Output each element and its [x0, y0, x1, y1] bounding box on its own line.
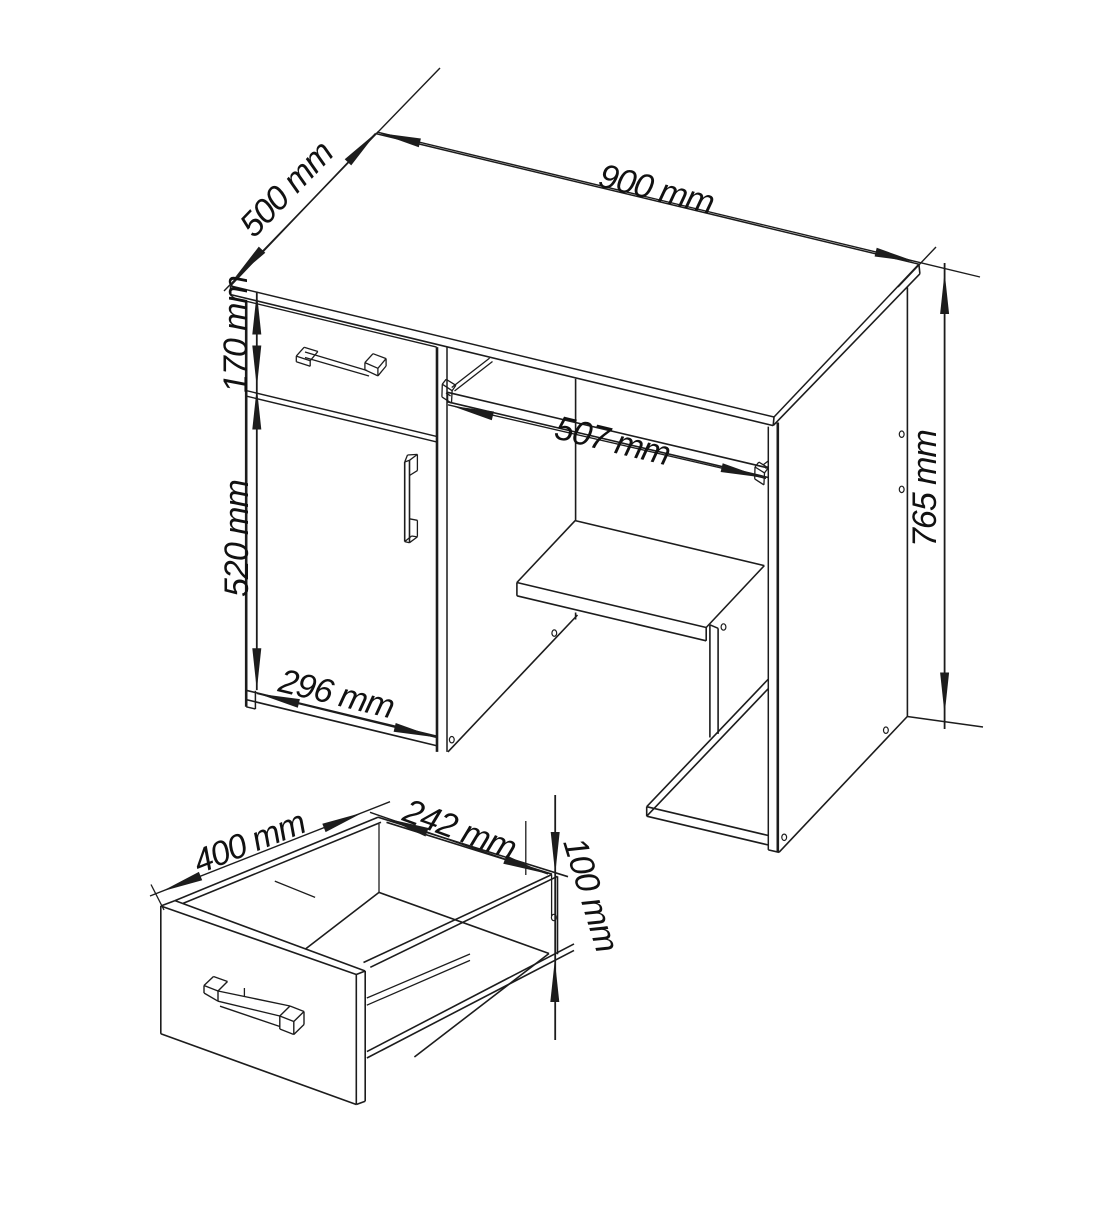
svg-text:170 mm: 170 mm — [217, 276, 255, 393]
svg-text:520 mm: 520 mm — [218, 480, 256, 597]
svg-text:765 mm: 765 mm — [906, 430, 944, 547]
